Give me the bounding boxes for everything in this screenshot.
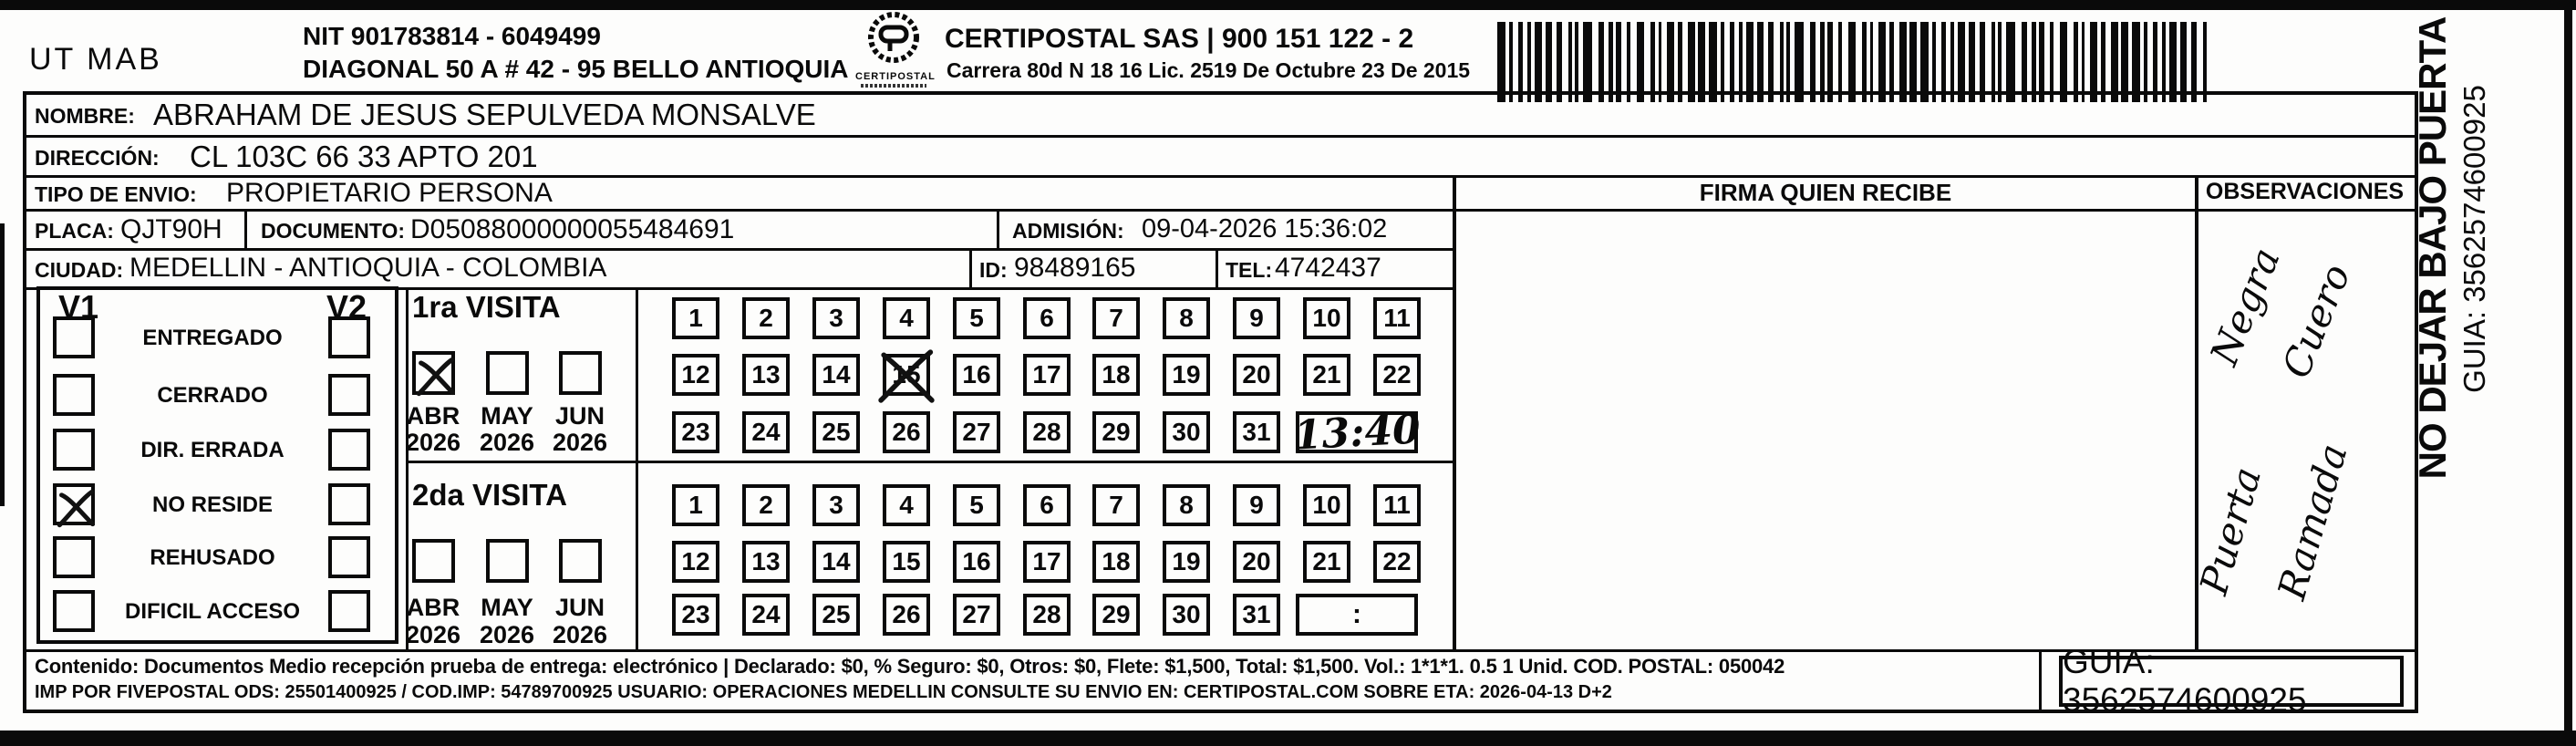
barcode-bar — [1795, 22, 1804, 102]
barcode-bar — [2101, 22, 2105, 102]
visit2-day-cell-24: 24 — [742, 594, 790, 636]
barcode-bar — [2153, 22, 2157, 102]
visit2-day-cell-26: 26 — [883, 594, 930, 636]
visit1-day-cell-24: 24 — [742, 411, 790, 453]
visit2-day-cell-27: 27 — [953, 594, 1000, 636]
barcode-bar — [1698, 22, 1705, 102]
visit1-day-cell-14: 14 — [812, 354, 860, 396]
tel-label: TEL: — [1226, 258, 1272, 283]
visit1-day-cell-27: 27 — [953, 411, 1000, 453]
barcode-bar — [2121, 22, 2128, 102]
scan-bottom-edge — [0, 730, 2576, 746]
scanned-delivery-form: UT MAB NIT 901783814 - 6049499 DIAGONAL … — [0, 0, 2576, 746]
visit2-day-cell-18: 18 — [1092, 541, 1140, 583]
barcode-bar — [2180, 22, 2187, 102]
visit2-day-cell-8: 8 — [1163, 484, 1210, 526]
v1-checkbox-no-reside — [53, 483, 95, 525]
barcode-bar — [2111, 22, 2118, 102]
barcode-bar — [2082, 22, 2085, 102]
barcode-bar — [1768, 22, 1774, 102]
visit1-day-cell-23: 23 — [672, 411, 719, 453]
visit2-day-cell-31: 31 — [1233, 594, 1280, 636]
barcode-bar — [1950, 22, 1954, 102]
barcode-bar — [1557, 22, 1562, 102]
visit2-day-cell-1: 1 — [672, 484, 719, 526]
barcode-bar — [1862, 22, 1867, 102]
barcode-bar — [1810, 22, 1816, 102]
visit1-day-cell-12: 12 — [672, 354, 719, 396]
recipient-address: CL 103C 66 33 APTO 201 — [190, 140, 538, 174]
v2-checkbox-dificil-acceso — [328, 590, 370, 632]
visit2-day-cell-5: 5 — [953, 484, 1000, 526]
visit1-day-cell-13: 13 — [742, 354, 790, 396]
visit1-day-cross-mark — [872, 347, 941, 403]
visit1-day-cell-1: 1 — [672, 297, 719, 339]
barcode-bar — [1650, 22, 1655, 102]
status-label-cerrado: CERRADO — [102, 383, 323, 409]
barcode-bar — [1616, 22, 1621, 102]
barcode-bar — [1518, 22, 1523, 102]
visit1-day-cell-26: 26 — [883, 411, 930, 453]
barcode-bar — [2006, 22, 2015, 102]
visit1-month-checkbox-abr — [412, 351, 455, 395]
visit1-year-label: 2026 — [471, 429, 543, 457]
visit1-month-checkbox-jun — [559, 351, 602, 395]
visit2-year-label: 2026 — [543, 621, 616, 649]
status-label-entregado: ENTREGADO — [102, 326, 323, 351]
visit2-month-checkbox-abr — [412, 539, 455, 583]
id-value: 98489165 — [1014, 253, 1135, 284]
footer-content-line: Contenido: Documentos Medio recepción pr… — [35, 655, 1785, 679]
barcode-bar — [1920, 22, 1929, 102]
v1-checkbox-dir-errada — [53, 429, 95, 471]
visit1-day-cell-7: 7 — [1092, 297, 1140, 339]
barcode-bar — [1786, 22, 1790, 102]
visit2-day-cell-20: 20 — [1233, 541, 1280, 583]
barcode-bar — [1889, 22, 1894, 102]
ciudad-label: CIUDAD: — [35, 258, 123, 283]
visit1-day-cell-11: 11 — [1373, 297, 1421, 339]
visit1-title: 1ra VISITA — [412, 290, 561, 325]
recipient-name: ABRAHAM DE JESUS SEPULVEDA MONSALVE — [153, 98, 816, 132]
barcode-bar — [2169, 22, 2177, 102]
visit2-day-cell-13: 13 — [742, 541, 790, 583]
visit2-year-label: 2026 — [397, 621, 470, 649]
placa-label: PLACA: — [35, 219, 114, 243]
visit1-day-cell-9: 9 — [1233, 297, 1280, 339]
company-name: CERTIPOSTAL SAS | 900 151 122 - 2 — [945, 24, 1413, 55]
documento-value: D05088000000055484691 — [410, 214, 734, 245]
barcode-bar — [1659, 22, 1661, 102]
visit1-day-cell-29: 29 — [1092, 411, 1140, 453]
visit2-day-cell-3: 3 — [812, 484, 860, 526]
barcode-bar — [2074, 22, 2078, 102]
barcode-bar — [1998, 22, 2002, 102]
v2-checkbox-cerrado — [328, 374, 370, 416]
visit2-time-value: : — [1352, 599, 1361, 630]
barcode-bar — [1980, 22, 1985, 102]
barcode-bar — [1637, 22, 1644, 102]
barcode-bar — [1583, 22, 1592, 102]
firma-header: FIRMA QUIEN RECIBE — [1456, 179, 2195, 207]
visit1-day-cell-10: 10 — [1303, 297, 1350, 339]
barcode-bar — [2022, 22, 2027, 102]
visit2-day-cell-23: 23 — [672, 594, 719, 636]
observaciones-header: OBSERVACIONES — [2195, 179, 2415, 205]
v1-checkbox-rehusado — [53, 536, 95, 578]
barcode-bar — [1535, 22, 1542, 102]
barcode-bar — [1688, 22, 1695, 102]
placa-value: QJT90H — [120, 214, 222, 245]
status-label-dir-errada: DIR. ERRADA — [102, 438, 323, 463]
visit2-day-cell-16: 16 — [953, 541, 1000, 583]
logo-fine-print — [861, 84, 926, 88]
barcode-bar — [2162, 22, 2166, 102]
visit2-month-checkbox-jun — [559, 539, 602, 583]
visit1-time-cell: 13:40 — [1296, 411, 1418, 453]
barcode-bar — [1575, 22, 1578, 102]
visit2-day-cell-15: 15 — [883, 541, 930, 583]
visit2-time-cell: : — [1296, 594, 1418, 636]
visit2-month-label: ABR — [397, 594, 470, 622]
status-label-dificil-acceso: DIFICIL ACCESO — [102, 599, 323, 625]
documento-label: DOCUMENTO: — [261, 219, 405, 243]
scan-top-edge — [0, 0, 2576, 10]
visit1-day-cell-25: 25 — [812, 411, 860, 453]
visit2-day-cell-12: 12 — [672, 541, 719, 583]
visit2-day-cell-21: 21 — [1303, 541, 1350, 583]
barcode-bar — [2203, 22, 2207, 102]
visit1-day-cell-4: 4 — [883, 297, 930, 339]
visit1-month-label: ABR — [397, 402, 470, 430]
status-label-no-reside: NO RESIDE — [102, 492, 323, 518]
barcode-bar — [1730, 22, 1734, 102]
visit2-month-checkbox-may — [486, 539, 529, 583]
handwritten-note: Ramada — [2269, 439, 2355, 604]
visit1-day-cell-16: 16 — [953, 354, 1000, 396]
ciudad-value: MEDELLIN - ANTIOQUIA - COLOMBIA — [129, 253, 606, 284]
visit1-day-cell-22: 22 — [1373, 354, 1421, 396]
barcode-bar — [1878, 22, 1886, 102]
side-guia-vertical: GUIA: 3562574600925 — [2457, 57, 2493, 421]
barcode-bar — [1838, 22, 1842, 102]
admision-label: ADMISIÓN: — [1012, 219, 1124, 243]
side-warning-vertical: NO DEJAR BAJO PUERTA — [2409, 0, 2457, 522]
v1-checkbox-entregado — [53, 316, 95, 358]
v1-checkbox-dificil-acceso — [53, 590, 95, 632]
company-license: Carrera 80d N 18 16 Lic. 2519 De Octubre… — [947, 58, 1470, 83]
barcode-bar — [1678, 22, 1682, 102]
visit2-day-cell-9: 9 — [1233, 484, 1280, 526]
barcode-bar — [1932, 22, 1936, 102]
visit1-day-cell-31: 31 — [1233, 411, 1280, 453]
visit2-title: 2da VISITA — [412, 478, 567, 513]
scan-left-edge — [0, 223, 5, 506]
barcode-bar — [1780, 22, 1784, 102]
tracking-barcode — [1497, 22, 2227, 102]
visit1-day-cell-3: 3 — [812, 297, 860, 339]
visit1-day-cell-18: 18 — [1092, 354, 1140, 396]
logo-caption: CERTIPOSTAL — [855, 71, 932, 82]
barcode-bar — [2039, 22, 2044, 102]
barcode-bar — [1969, 22, 1975, 102]
visit2-day-cell-19: 19 — [1163, 541, 1210, 583]
v2-checkbox-entregado — [328, 316, 370, 358]
barcode-bar — [1527, 22, 1531, 102]
v2-checkbox-dir-errada — [328, 429, 370, 471]
barcode-bar — [2050, 22, 2054, 102]
nombre-label: NOMBRE: — [35, 104, 135, 129]
visit1-day-cell-21: 21 — [1303, 354, 1350, 396]
handwritten-note: Negra — [2201, 242, 2288, 371]
visit2-month-label: JUN — [543, 594, 616, 622]
stamp-seal-icon — [855, 9, 932, 69]
barcode-bar — [1667, 22, 1674, 102]
v1-checkbox-cerrado — [53, 374, 95, 416]
visit2-day-cell-4: 4 — [883, 484, 930, 526]
visit2-day-cell-30: 30 — [1163, 594, 1210, 636]
barcode-bar — [1820, 22, 1825, 102]
barcode-bar — [1991, 22, 1995, 102]
barcode-bar — [1609, 22, 1613, 102]
footer-imp-line: IMP POR FIVEPOSTAL ODS: 25501400925 / CO… — [35, 682, 1612, 703]
visit1-day-cell-28: 28 — [1023, 411, 1071, 453]
barcode-bar — [1546, 22, 1552, 102]
tel-value: 4742437 — [1275, 253, 1381, 284]
visit1-time-value: 13:40 — [1292, 406, 1421, 459]
barcode-bar — [1870, 22, 1873, 102]
barcode-bar — [1958, 22, 1965, 102]
visit1-month-checkbox-may — [486, 351, 529, 395]
company-street-address: DIAGONAL 50 A # 42 - 95 BELLO ANTIOQUIA — [303, 55, 848, 84]
guia-box: GUIA: 3562574600925 — [2059, 656, 2404, 707]
barcode-bar — [1757, 22, 1764, 102]
barcode-bar — [1627, 22, 1630, 102]
visit2-day-cell-14: 14 — [812, 541, 860, 583]
visit1-month-label: JUN — [543, 402, 616, 430]
barcode-bar — [2144, 22, 2147, 102]
visit2-day-cell-29: 29 — [1092, 594, 1140, 636]
direccion-label: DIRECCIÓN: — [35, 146, 160, 171]
visit2-day-cell-17: 17 — [1023, 541, 1071, 583]
visit2-day-cell-22: 22 — [1373, 541, 1421, 583]
visit1-day-cell-19: 19 — [1163, 354, 1210, 396]
visit1-day-cell-6: 6 — [1023, 297, 1071, 339]
id-label: ID: — [979, 258, 1008, 283]
barcode-bar — [1941, 22, 1946, 102]
visit2-day-cell-28: 28 — [1023, 594, 1071, 636]
visit1-month-label: MAY — [471, 402, 543, 430]
status-label-rehusado: REHUSADO — [102, 545, 323, 571]
visit1-day-cell-2: 2 — [742, 297, 790, 339]
barcode-bar — [2090, 22, 2097, 102]
visit2-month-label: MAY — [471, 594, 543, 622]
barcode-bar — [1909, 22, 1917, 102]
visit2-day-cell-7: 7 — [1092, 484, 1140, 526]
visit1-day-cell-30: 30 — [1163, 411, 1210, 453]
barcode-bar — [1848, 22, 1856, 102]
barcode-bar — [2132, 22, 2140, 102]
visit1-day-cell-5: 5 — [953, 297, 1000, 339]
unit-code: UT MAB — [29, 42, 162, 78]
barcode-bar — [1598, 22, 1604, 102]
barcode-bar — [2191, 22, 2197, 102]
company-nit: NIT 901783814 - 6049499 — [303, 22, 601, 51]
barcode-bar — [2060, 22, 2067, 102]
barcode-bar — [1899, 22, 1907, 102]
handwritten-note: Puerta — [2191, 462, 2270, 599]
tipo-envio-value: PROPIETARIO PERSONA — [226, 178, 553, 209]
visit2-day-cell-10: 10 — [1303, 484, 1350, 526]
visit1-year-label: 2026 — [543, 429, 616, 457]
v2-checkbox-rehusado — [328, 536, 370, 578]
barcode-bar — [2032, 22, 2036, 102]
barcode-bar — [1509, 22, 1513, 102]
visit2-day-cell-11: 11 — [1373, 484, 1421, 526]
barcode-bar — [1721, 22, 1724, 102]
visit2-day-cell-6: 6 — [1023, 484, 1071, 526]
v2-checkbox-no-reside — [328, 483, 370, 525]
visit1-day-cell-17: 17 — [1023, 354, 1071, 396]
barcode-bar — [1709, 22, 1717, 102]
barcode-bar — [1497, 22, 1505, 102]
barcode-bar — [1568, 22, 1572, 102]
visit2-year-label: 2026 — [471, 621, 543, 649]
tipo-envio-label: TIPO DE ENVIO: — [35, 182, 197, 207]
visit1-day-cell-20: 20 — [1233, 354, 1280, 396]
scan-right-edge — [2564, 10, 2572, 730]
visit1-day-cell-8: 8 — [1163, 297, 1210, 339]
handwritten-note: Cuero — [2273, 258, 2359, 384]
barcode-bar — [1827, 22, 1833, 102]
certipostal-logo: CERTIPOSTAL — [855, 9, 932, 88]
barcode-bar — [1739, 22, 1743, 102]
admision-value: 09-04-2026 15:36:02 — [1142, 214, 1387, 244]
visit1-year-label: 2026 — [397, 429, 470, 457]
visit2-day-cell-25: 25 — [812, 594, 860, 636]
visit2-day-cell-2: 2 — [742, 484, 790, 526]
guia-number: GUIA: 3562574600925 — [2063, 643, 2400, 720]
barcode-bar — [1746, 22, 1754, 102]
